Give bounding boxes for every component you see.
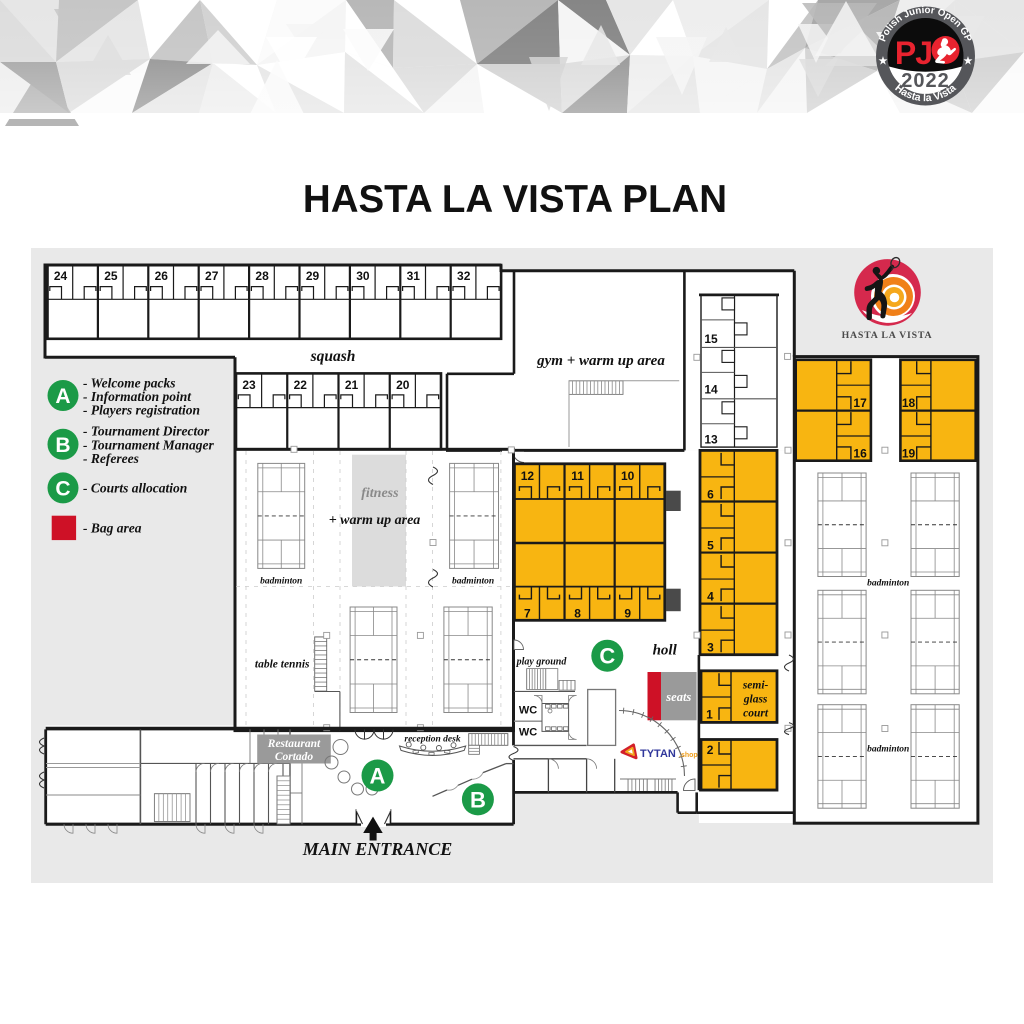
svg-text:31: 31 xyxy=(407,269,421,283)
svg-text:HASTA LA VISTA PLAN: HASTA LA VISTA PLAN xyxy=(303,178,727,221)
svg-text:25: 25 xyxy=(104,269,118,283)
svg-text:Restaurant: Restaurant xyxy=(267,738,321,750)
svg-text:badminton: badminton xyxy=(260,577,302,587)
svg-text:★: ★ xyxy=(964,56,973,67)
svg-text:C: C xyxy=(599,644,615,669)
svg-text:21: 21 xyxy=(345,378,359,392)
svg-text:gym + warm up area: gym + warm up area xyxy=(536,353,665,369)
svg-text:semi-: semi- xyxy=(742,680,769,692)
svg-text:table tennis: table tennis xyxy=(255,659,310,671)
svg-text:23: 23 xyxy=(242,378,256,392)
svg-text:4: 4 xyxy=(707,590,714,604)
svg-text:fitness: fitness xyxy=(361,486,399,501)
svg-text:6: 6 xyxy=(707,487,714,501)
svg-text:18: 18 xyxy=(902,396,916,410)
svg-text:glass: glass xyxy=(743,694,768,706)
svg-text:28: 28 xyxy=(255,269,269,283)
svg-text:2: 2 xyxy=(707,743,714,757)
svg-text:play ground: play ground xyxy=(516,657,568,668)
svg-text:A: A xyxy=(370,764,386,789)
svg-text:10: 10 xyxy=(621,469,635,483)
svg-text:30: 30 xyxy=(356,269,370,283)
svg-text:Cortado: Cortado xyxy=(275,751,314,763)
svg-text:- Courts allocation: - Courts allocation xyxy=(83,480,187,495)
svg-text:badminton: badminton xyxy=(867,745,909,755)
svg-text:badminton: badminton xyxy=(452,577,494,587)
svg-text:27: 27 xyxy=(205,269,219,283)
svg-text:3: 3 xyxy=(707,641,714,655)
svg-text:MAIN ENTRANCE: MAIN ENTRANCE xyxy=(302,839,453,859)
svg-text:holl: holl xyxy=(653,643,678,659)
svg-text:B: B xyxy=(470,787,486,812)
svg-text:17: 17 xyxy=(853,396,867,410)
svg-text:C: C xyxy=(55,477,70,500)
svg-text:14: 14 xyxy=(704,382,718,396)
svg-text:20: 20 xyxy=(396,378,410,392)
svg-text:- Bag area: - Bag area xyxy=(83,520,142,535)
svg-text:WC: WC xyxy=(519,727,537,739)
svg-text:- Referees: - Referees xyxy=(83,451,139,466)
svg-text:13: 13 xyxy=(704,432,718,446)
svg-text:12: 12 xyxy=(521,469,535,483)
svg-text:1: 1 xyxy=(706,707,713,721)
svg-text:HASTA LA VISTA: HASTA LA VISTA xyxy=(842,330,933,341)
svg-text:★: ★ xyxy=(879,56,888,67)
svg-text:26: 26 xyxy=(155,269,169,283)
svg-text:29: 29 xyxy=(306,269,320,283)
svg-text:16: 16 xyxy=(853,447,867,461)
svg-text:22: 22 xyxy=(294,378,308,392)
svg-text:19: 19 xyxy=(902,447,916,461)
svg-text:badminton: badminton xyxy=(867,578,909,588)
svg-text:24: 24 xyxy=(54,269,68,283)
svg-text:+ warm up area: + warm up area xyxy=(329,513,421,528)
svg-text:squash: squash xyxy=(310,348,356,365)
svg-text:9: 9 xyxy=(624,607,631,621)
svg-text:WC: WC xyxy=(519,705,537,717)
svg-text:court: court xyxy=(743,708,769,720)
svg-text:seats: seats xyxy=(665,690,691,704)
svg-text:5: 5 xyxy=(707,538,714,552)
svg-text:PJ: PJ xyxy=(895,35,932,71)
svg-text:8: 8 xyxy=(574,607,581,621)
svg-text:- Players registration: - Players registration xyxy=(83,403,200,418)
svg-text:TYTAN: TYTAN xyxy=(640,748,676,760)
svg-text:.shop: .shop xyxy=(679,752,698,759)
svg-text:11: 11 xyxy=(571,469,584,483)
svg-text:B: B xyxy=(55,434,70,457)
svg-text:15: 15 xyxy=(704,332,718,346)
svg-text:7: 7 xyxy=(524,607,531,621)
svg-text:32: 32 xyxy=(457,269,471,283)
svg-text:A: A xyxy=(55,385,70,408)
